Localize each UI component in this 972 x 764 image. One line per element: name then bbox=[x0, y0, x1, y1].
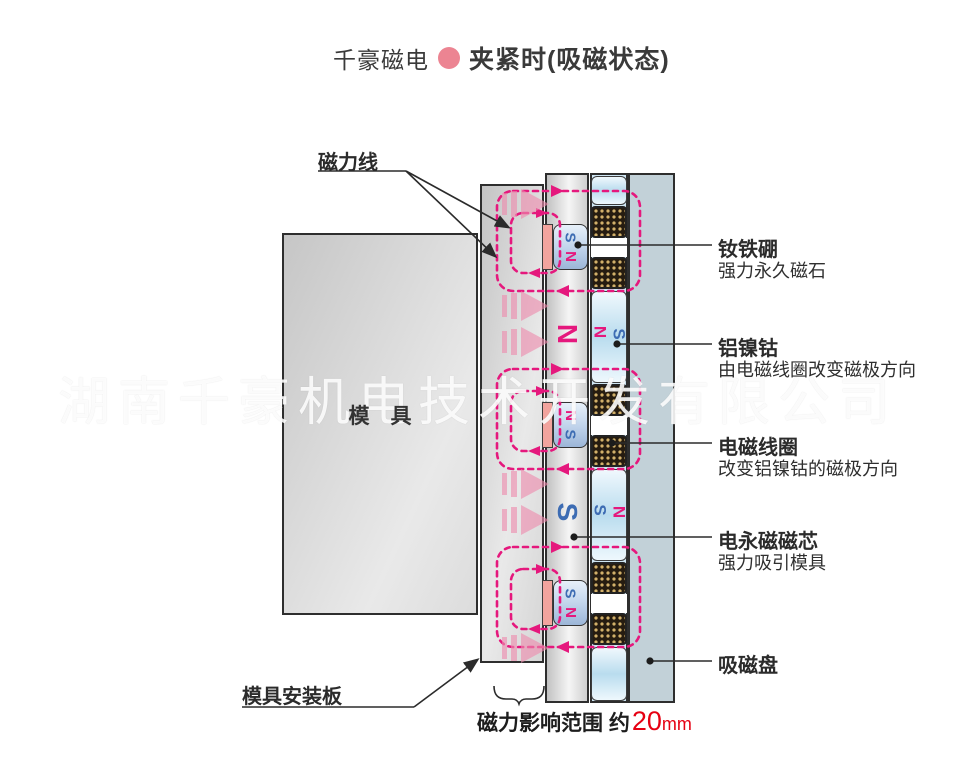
ndfeb-magnet-row3: S N bbox=[553, 580, 588, 626]
pole-letter: S bbox=[561, 588, 580, 598]
coil-gap-row3 bbox=[591, 594, 627, 613]
alnico-pole-letter: S bbox=[609, 325, 629, 344]
brand-dot-icon bbox=[438, 47, 460, 69]
range-unit: mm bbox=[662, 714, 692, 735]
page-title: 千豪磁电 夹紧时(吸磁状态) bbox=[333, 40, 670, 76]
pole-letter: N bbox=[561, 607, 580, 618]
chuck-body-column bbox=[628, 173, 675, 703]
alnico-pole-letter: S bbox=[590, 501, 610, 520]
callout-alnico-desc: 由电磁线圈改变磁极方向 bbox=[718, 356, 916, 382]
pole-letter: N bbox=[561, 251, 580, 262]
coil-top-row3 bbox=[591, 562, 627, 594]
range-brace bbox=[494, 686, 544, 704]
coil-bottom-row1 bbox=[591, 257, 627, 289]
callout-core-desc: 强力吸引模具 bbox=[718, 549, 826, 575]
mounting-plate-label: 模具安装板 bbox=[242, 680, 342, 709]
coil-top-row1 bbox=[591, 206, 627, 238]
range-value: 20 bbox=[632, 706, 662, 737]
coil-bottom-row2 bbox=[591, 435, 627, 467]
mounting-plate-arrow bbox=[414, 660, 477, 707]
core-pole-letter: S bbox=[551, 490, 583, 534]
diagram-canvas: 千豪磁电 夹紧时(吸磁状态) S N N N S N S S S N S N bbox=[0, 0, 972, 764]
coil-gap-row1 bbox=[591, 238, 627, 257]
mold-label: 模 具 bbox=[282, 400, 478, 430]
callout-coil-desc: 改变铝镍钴的磁极方向 bbox=[718, 455, 898, 481]
brand-text: 千豪磁电 bbox=[333, 41, 429, 75]
magnet-backing-row3 bbox=[542, 580, 553, 626]
coil-bottom-row3 bbox=[591, 613, 627, 645]
range-label: 磁力影响范围 约 20 mm bbox=[477, 706, 692, 737]
alnico-pole-letter: N bbox=[590, 323, 610, 342]
callout-chuck-title: 吸磁盘 bbox=[718, 649, 778, 678]
pole-letter: S bbox=[561, 232, 580, 242]
alnico-pole-letter: N bbox=[609, 503, 629, 522]
page-heading: 夹紧时(吸磁状态) bbox=[469, 40, 670, 76]
alnico-segment bbox=[591, 647, 627, 701]
ndfeb-magnet-row1: S N bbox=[553, 224, 588, 270]
range-prefix: 磁力影响范围 约 bbox=[477, 707, 630, 737]
alnico-segment bbox=[591, 176, 627, 205]
core-pole-letter: N bbox=[551, 312, 583, 356]
magnet-backing-row1 bbox=[542, 224, 553, 270]
callout-ndfeb-desc: 强力永久磁石 bbox=[718, 257, 826, 283]
field-lines-label: 磁力线 bbox=[318, 146, 378, 175]
